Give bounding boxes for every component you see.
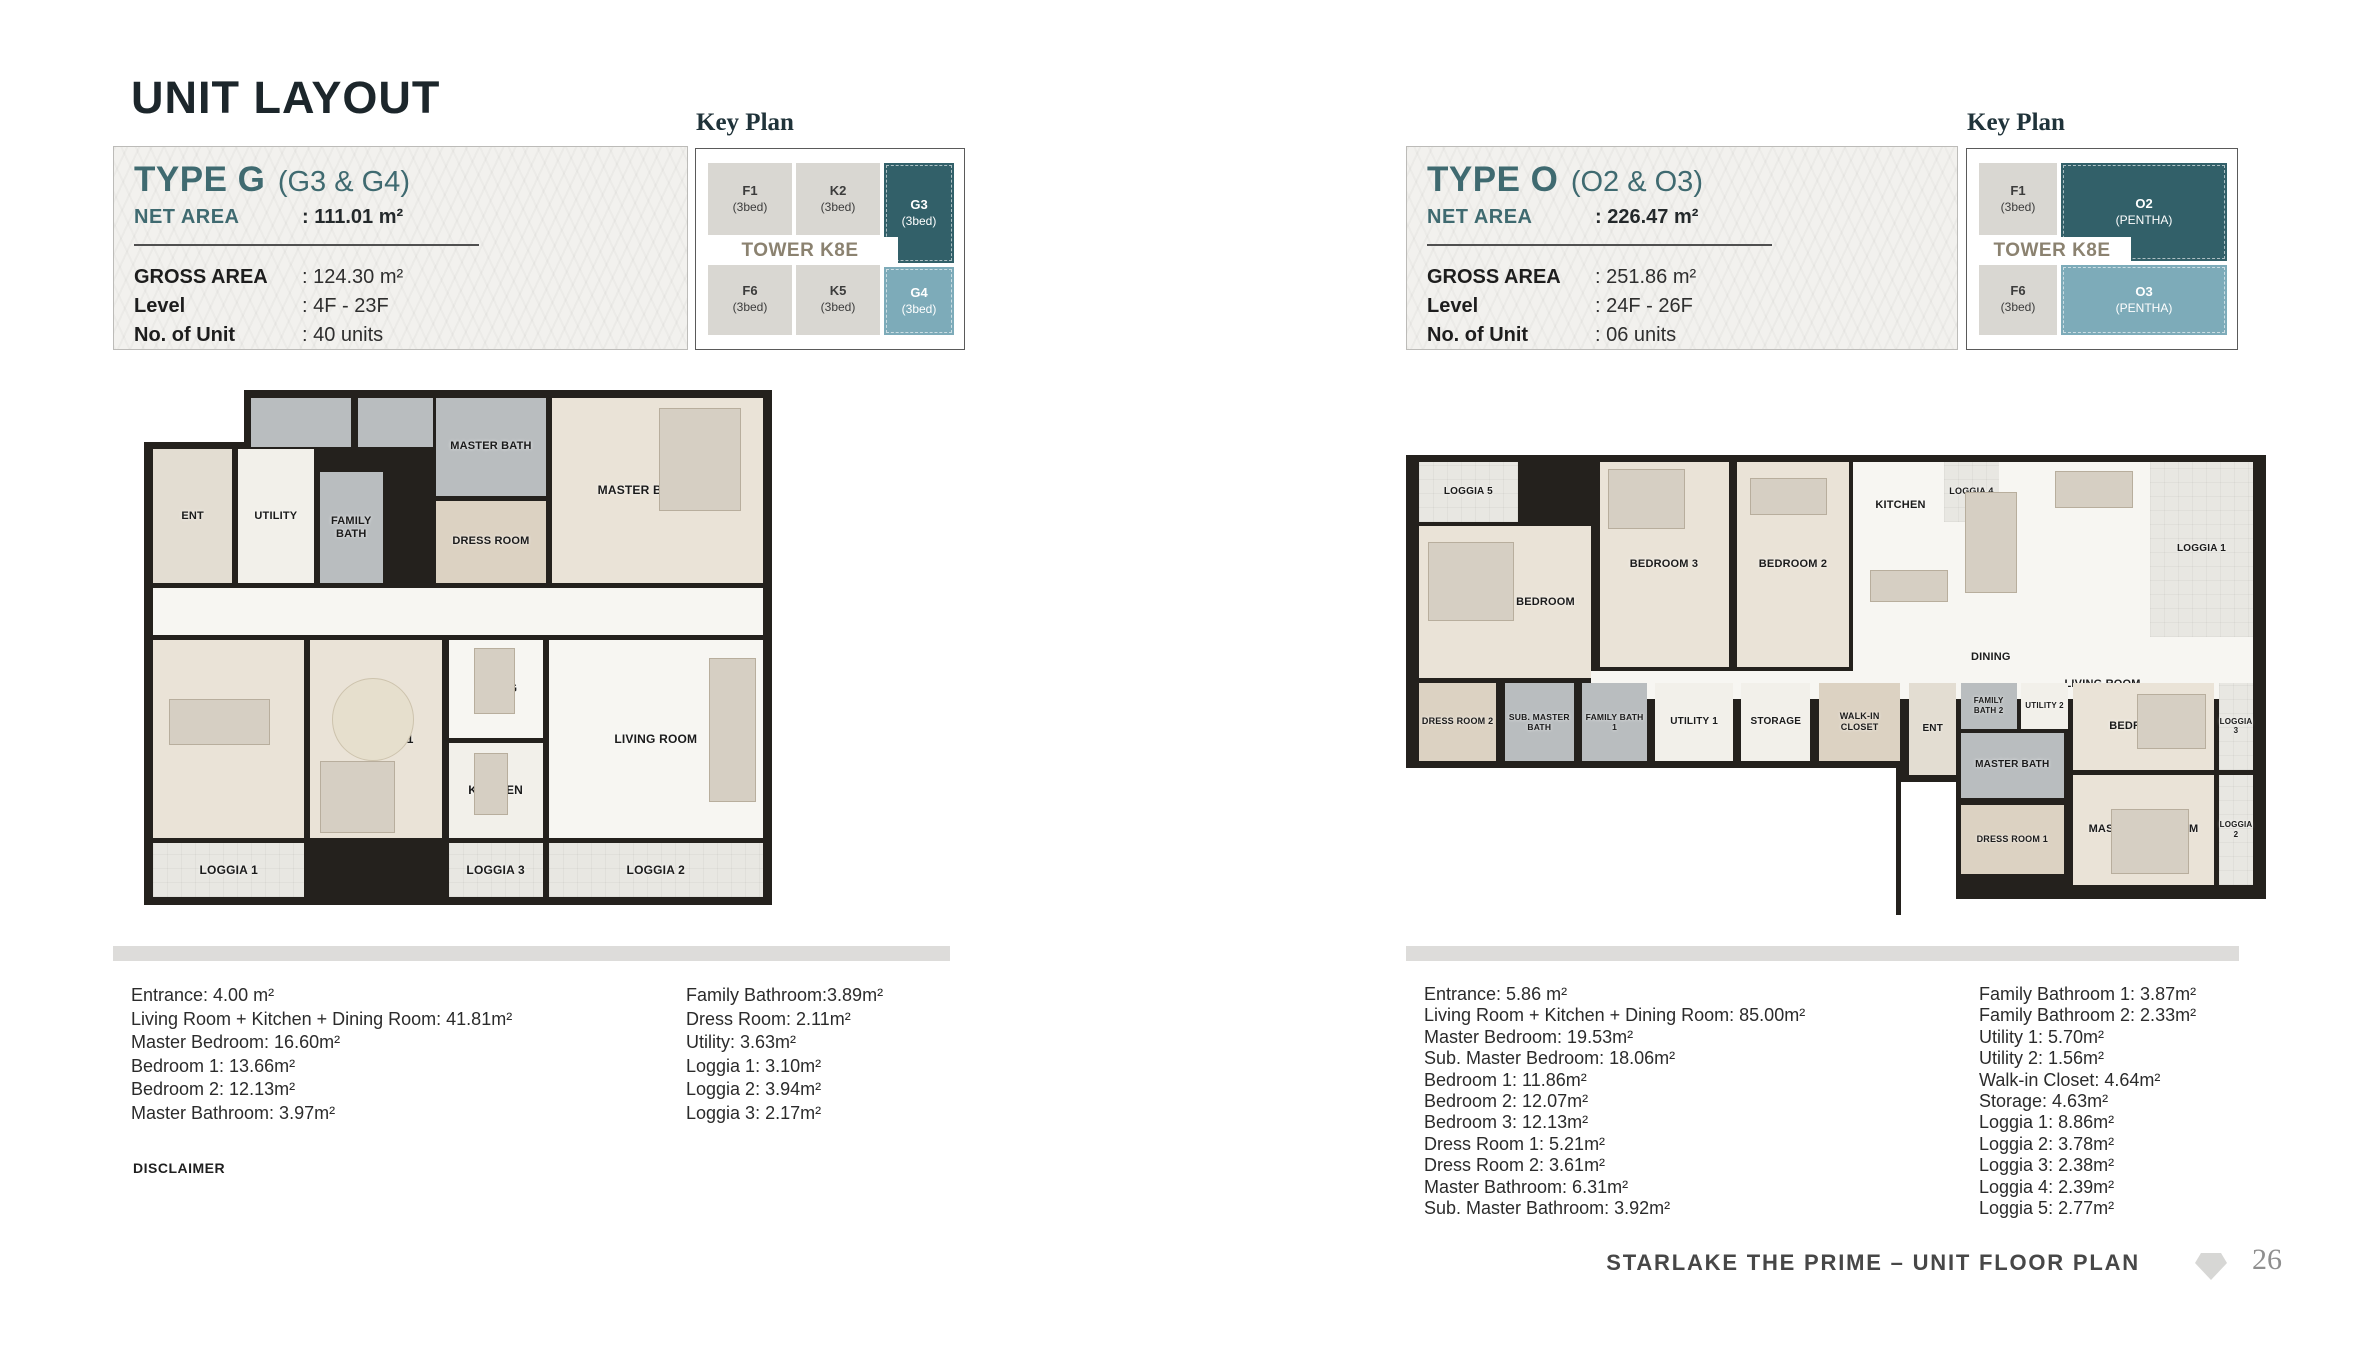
dimension-line: Dress Room: 2.11m² bbox=[686, 1008, 1246, 1032]
dimensions-col2: Family Bathroom 1: 3.87m²Family Bathroom… bbox=[1979, 984, 2371, 1219]
room-label: LOGGIA 1 bbox=[2175, 541, 2228, 557]
dimension-line: Utility 1: 5.70m² bbox=[1979, 1027, 2371, 1048]
room-loggia-5: LOGGIA 5 bbox=[1419, 462, 1518, 522]
dimension-line: Bedroom 2: 12.07m² bbox=[1424, 1091, 1984, 1112]
plan-area bbox=[332, 678, 414, 760]
room-dress-room-1: DRESS ROOM 1 bbox=[1961, 805, 2064, 874]
room-ent: ENT bbox=[153, 449, 232, 583]
room-loggia-2: LOGGIA 2 bbox=[2219, 775, 2253, 885]
tower-label: TOWER K8E bbox=[702, 237, 898, 265]
page-number: 26 bbox=[2252, 1243, 2282, 1277]
spec-label: No. of Unit bbox=[1427, 321, 1595, 350]
plan-area bbox=[1965, 492, 2017, 593]
plan-area bbox=[1901, 782, 1957, 915]
room-kitchen: KITCHEN bbox=[1858, 492, 1944, 520]
room-label: FAMILY BATH bbox=[320, 513, 383, 543]
net-area-value: : 111.01 m² bbox=[302, 206, 403, 228]
room-label: LIVING ROOM bbox=[612, 730, 699, 748]
room-label: FAMILY BATH 2 bbox=[1961, 694, 2017, 717]
divider-line bbox=[134, 244, 479, 246]
key-plan-cell-sub: (3bed) bbox=[2001, 200, 2036, 215]
spec-row-gross-area: GROSS AREA: 124.30 m² bbox=[134, 263, 687, 292]
dimension-line: Loggia 5: 2.77m² bbox=[1979, 1198, 2371, 1219]
dimensions-col1: Entrance: 4.00 m²Living Room + Kitchen +… bbox=[131, 984, 691, 1126]
plan-area bbox=[1922, 899, 2266, 915]
dimension-line: Master Bedroom: 16.60m² bbox=[131, 1031, 691, 1055]
key-plan-cell-g4: G4(3bed) bbox=[884, 267, 954, 335]
room-label: DRESS ROOM 2 bbox=[1420, 714, 1495, 729]
page-title: UNIT LAYOUT bbox=[131, 72, 440, 124]
room-label: DRESS ROOM 1 bbox=[1975, 832, 2050, 847]
spec-row-gross-area: GROSS AREA: 251.86 m² bbox=[1427, 263, 1957, 292]
type-line: TYPE O (O2 & O3) bbox=[1427, 160, 1957, 200]
shadow-bar bbox=[113, 946, 950, 961]
net-area-value: : 226.47 m² bbox=[1595, 206, 1698, 228]
room-family-bath-1: FAMILY BATH 1 bbox=[1582, 683, 1647, 761]
brochure-page: UNIT LAYOUT TYPE G (G3 & G4) NET AREA: 1… bbox=[0, 0, 2371, 1347]
plan-area bbox=[1428, 542, 1514, 620]
key-plan-cell-f6: F6(3bed) bbox=[708, 263, 792, 335]
unit-type-subtitle: (O2 & O3) bbox=[1571, 166, 1703, 198]
key-plan-box: Key Plan F1(3bed)K2(3bed)G3(3bed)F6(3bed… bbox=[695, 148, 965, 350]
key-plan-cell-label: F1 bbox=[742, 183, 757, 199]
room-label: LOGGIA 5 bbox=[1442, 484, 1495, 500]
room-loggia-3: LOGGIA 3 bbox=[449, 843, 543, 897]
dimension-line: Living Room + Kitchen + Dining Room: 85.… bbox=[1424, 1005, 1984, 1026]
key-plan-cell-sub: (3bed) bbox=[733, 300, 768, 315]
dimension-line: Entrance: 5.86 m² bbox=[1424, 984, 1984, 1005]
room-storage: STORAGE bbox=[1741, 683, 1810, 761]
dimension-line: Sub. Master Bedroom: 18.06m² bbox=[1424, 1048, 1984, 1069]
room-label: DINING bbox=[1969, 649, 2013, 666]
spec-label: Level bbox=[1427, 292, 1595, 321]
room-label: ENT bbox=[179, 508, 206, 525]
dimensions-col1: Entrance: 5.86 m²Living Room + Kitchen +… bbox=[1424, 984, 1984, 1219]
dimension-line: Storage: 4.63m² bbox=[1979, 1091, 2371, 1112]
spec-label: GROSS AREA bbox=[134, 263, 302, 292]
room-label: UTILITY 2 bbox=[2023, 699, 2066, 713]
room-label: STORAGE bbox=[1748, 714, 1803, 730]
spec-value: : 4F - 23F bbox=[302, 295, 389, 317]
dimension-line: Master Bedroom: 19.53m² bbox=[1424, 1027, 1984, 1048]
plan-area bbox=[659, 408, 741, 511]
net-area-row: NET AREA: 111.01 m² bbox=[134, 206, 687, 229]
spec-rows: GROSS AREA: 251.86 m²Level: 24F - 26FNo.… bbox=[1427, 263, 1957, 350]
dimension-line: Bedroom 1: 11.86m² bbox=[1424, 1070, 1984, 1091]
key-plan-box: Key Plan F1(3bed)O2(PENTHA)F6(3bed)O3(PE… bbox=[1966, 148, 2238, 350]
room-dress-room: DRESS ROOM bbox=[436, 501, 546, 583]
room-loggia-2: LOGGIA 2 bbox=[549, 843, 763, 897]
dimension-line: Master Bathroom: 3.97m² bbox=[131, 1102, 691, 1126]
room-master-bath: MASTER BATH bbox=[1961, 733, 2064, 797]
plan-area bbox=[2111, 809, 2188, 873]
dimension-line: Bedroom 3: 12.13m² bbox=[1424, 1112, 1984, 1133]
key-plan-cell-label: K5 bbox=[830, 283, 847, 299]
key-plan-cell-k5: K5(3bed) bbox=[796, 263, 880, 335]
dimension-line: Sub. Master Bathroom: 3.92m² bbox=[1424, 1198, 1984, 1219]
dimension-line: Loggia 1: 8.86m² bbox=[1979, 1112, 2371, 1133]
plan-area bbox=[169, 699, 269, 745]
shadow-bar bbox=[1406, 946, 2239, 961]
key-plan-cell-sub: (3bed) bbox=[733, 200, 768, 215]
dimension-line: Family Bathroom:3.89m² bbox=[686, 984, 1246, 1008]
room-label: SUB. MASTER BATH bbox=[1505, 710, 1574, 734]
room-utility-2: UTILITY 2 bbox=[2021, 683, 2068, 729]
spec-label: GROSS AREA bbox=[1427, 263, 1595, 292]
room-utility: UTILITY bbox=[238, 449, 313, 583]
key-plan-cell-sub: (3bed) bbox=[821, 300, 856, 315]
plan-area bbox=[153, 588, 762, 634]
disclaimer-block: DISCLAIMER bbox=[133, 1160, 833, 1183]
spec-row-level: Level: 24F - 26F bbox=[1427, 292, 1957, 321]
room-label: LOGGIA 2 bbox=[625, 861, 688, 879]
unit-type-title: TYPE O bbox=[1427, 160, 1558, 199]
room-dress-room-2: DRESS ROOM 2 bbox=[1419, 683, 1496, 761]
info-box: TYPE G (G3 & G4) NET AREA: 111.01 m² GRO… bbox=[113, 146, 688, 350]
dimension-line: Bedroom 1: 13.66m² bbox=[131, 1055, 691, 1079]
key-plan-cell-f1: F1(3bed) bbox=[708, 163, 792, 235]
room-label: WALK-IN CLOSET bbox=[1819, 709, 1901, 735]
room-label: LOGGIA 1 bbox=[198, 861, 261, 879]
dimension-line: Loggia 3: 2.38m² bbox=[1979, 1155, 2371, 1176]
key-plan-cell-sub: (PENTHA) bbox=[2116, 213, 2173, 228]
key-plan-cell-k2: K2(3bed) bbox=[796, 163, 880, 235]
plan-area bbox=[144, 390, 244, 442]
key-plan-cell-label: F6 bbox=[742, 283, 757, 299]
dimension-line: Dress Room 1: 5.21m² bbox=[1424, 1134, 1984, 1155]
net-area-label: NET AREA bbox=[134, 206, 302, 229]
key-plan-cell-label: G3 bbox=[910, 197, 927, 213]
tower-label: TOWER K8E bbox=[1973, 237, 2131, 265]
dimension-line: Loggia 2: 3.78m² bbox=[1979, 1134, 2371, 1155]
room-walk-in-closet: WALK-IN CLOSET bbox=[1819, 683, 1901, 761]
key-plan-cell-sub: (3bed) bbox=[902, 214, 937, 229]
room-label: UTILITY 1 bbox=[1668, 714, 1720, 730]
dimension-line: Dress Room 2: 3.61m² bbox=[1424, 1155, 1984, 1176]
room-loggia-1: LOGGIA 1 bbox=[153, 843, 304, 897]
divider-line bbox=[1427, 244, 1772, 246]
dimension-line: Utility 2: 1.56m² bbox=[1979, 1048, 2371, 1069]
floor-plan: LOGGIA 5SUB. MASTER BEDROOMBEDROOM 3BEDR… bbox=[1406, 455, 2266, 915]
dimension-line: Walk-in Closet: 4.64m² bbox=[1979, 1070, 2371, 1091]
key-plan-cell-label: G4 bbox=[910, 285, 927, 301]
spec-value: : 40 units bbox=[302, 324, 383, 346]
room-utility-1: UTILITY 1 bbox=[1655, 683, 1732, 761]
net-area-row: NET AREA: 226.47 m² bbox=[1427, 206, 1957, 229]
dimension-line: Bedroom 2: 12.13m² bbox=[131, 1078, 691, 1102]
footer-title: STARLAKE THE PRIME – UNIT FLOOR PLAN bbox=[1560, 1250, 2140, 1276]
key-plan-cell-sub: (3bed) bbox=[821, 200, 856, 215]
diamond-icon bbox=[2193, 1251, 2229, 1281]
dimensions-col2: Family Bathroom:3.89m²Dress Room: 2.11m²… bbox=[686, 984, 1246, 1126]
spec-value: : 124.30 m² bbox=[302, 266, 403, 288]
disclaimer-heading: DISCLAIMER bbox=[133, 1160, 833, 1176]
unit-type-subtitle: (G3 & G4) bbox=[278, 166, 410, 198]
key-plan-cell-f6: F6(3bed) bbox=[1979, 263, 2057, 335]
spec-label: No. of Unit bbox=[134, 321, 302, 350]
key-plan-cell-label: O3 bbox=[2135, 284, 2152, 300]
spec-label: Level bbox=[134, 292, 302, 321]
net-area-label: NET AREA bbox=[1427, 206, 1595, 229]
floor-plan: MASTER BATHMASTER BEDROOMENTUTILITYFAMIL… bbox=[144, 390, 772, 905]
key-plan-cell-sub: (3bed) bbox=[2001, 300, 2036, 315]
info-box: TYPE O (O2 & O3) NET AREA: 226.47 m² GRO… bbox=[1406, 146, 1958, 350]
room-label: MASTER BATH bbox=[448, 438, 533, 455]
plan-area bbox=[474, 648, 515, 715]
dimension-line: Loggia 4: 2.39m² bbox=[1979, 1177, 2371, 1198]
room-label: LOGGIA 3 bbox=[2218, 715, 2254, 738]
plan-area bbox=[2137, 694, 2206, 749]
key-plan-cell-label: K2 bbox=[830, 183, 847, 199]
room-family-bath: FAMILY BATH bbox=[320, 472, 383, 583]
key-plan-cell-f1: F1(3bed) bbox=[1979, 163, 2057, 235]
spec-value: : 251.86 m² bbox=[1595, 266, 1696, 288]
room-label: BEDROOM 2 bbox=[1757, 556, 1829, 573]
unit-card-type-o: TYPE O (O2 & O3) NET AREA: 226.47 m² GRO… bbox=[1406, 146, 2271, 1346]
room-label: MASTER BATH bbox=[1973, 757, 2051, 773]
dimension-line: Living Room + Kitchen + Dining Room: 41.… bbox=[131, 1008, 691, 1032]
room-family-bath-2: FAMILY BATH 2 bbox=[1961, 683, 2017, 729]
key-plan-heading: Key Plan bbox=[696, 109, 794, 137]
plan-area bbox=[1870, 570, 1947, 602]
spec-value: : 06 units bbox=[1595, 324, 1676, 346]
key-plan-cell-label: F6 bbox=[2010, 283, 2025, 299]
unit-type-title: TYPE G bbox=[134, 160, 265, 199]
plan-area bbox=[320, 761, 395, 833]
plan-area bbox=[358, 398, 433, 447]
plan-area bbox=[709, 658, 756, 802]
dimension-line: Loggia 2: 3.94m² bbox=[686, 1078, 1246, 1102]
room-label: KITCHEN bbox=[1873, 497, 1927, 514]
dimension-line: Family Bathroom 2: 2.33m² bbox=[1979, 1005, 2371, 1026]
room-label: ENT bbox=[1920, 721, 1945, 737]
room-dining: DINING bbox=[1948, 644, 2034, 672]
spec-value: : 24F - 26F bbox=[1595, 295, 1693, 317]
dimension-line: Entrance: 4.00 m² bbox=[131, 984, 691, 1008]
room-label: DRESS ROOM bbox=[450, 533, 531, 550]
key-plan-cell-label: F1 bbox=[2010, 183, 2025, 199]
key-plan-cell-label: O2 bbox=[2135, 196, 2152, 212]
plan-area bbox=[1406, 768, 1896, 915]
room-loggia-1: LOGGIA 1 bbox=[2150, 462, 2253, 637]
type-line: TYPE G (G3 & G4) bbox=[134, 160, 687, 200]
key-plan-cell-o3: O3(PENTHA) bbox=[2061, 265, 2227, 335]
spec-row-no-of-unit: No. of Unit: 06 units bbox=[1427, 321, 1957, 350]
key-plan-cell-sub: (PENTHA) bbox=[2116, 301, 2173, 316]
key-plan-cell-sub: (3bed) bbox=[902, 302, 937, 317]
room-loggia-3: LOGGIA 3 bbox=[2219, 683, 2253, 770]
room-label: LOGGIA 2 bbox=[2218, 818, 2254, 841]
dimension-line: Loggia 3: 2.17m² bbox=[686, 1102, 1246, 1126]
spec-row-no-of-unit: No. of Unit: 40 units bbox=[134, 321, 687, 350]
room-ent: ENT bbox=[1909, 683, 1956, 775]
room-label: FAMILY BATH 1 bbox=[1582, 710, 1647, 734]
plan-area bbox=[251, 398, 351, 447]
dimension-line: Family Bathroom 1: 3.87m² bbox=[1979, 984, 2371, 1005]
dimension-line: Master Bathroom: 6.31m² bbox=[1424, 1177, 1984, 1198]
plan-area bbox=[1608, 469, 1685, 529]
room-sub-master-bath: SUB. MASTER BATH bbox=[1505, 683, 1574, 761]
plan-area bbox=[2055, 471, 2132, 508]
room-label: UTILITY bbox=[252, 508, 299, 525]
plan-area bbox=[474, 753, 509, 815]
spec-rows: GROSS AREA: 124.30 m²Level: 4F - 23FNo. … bbox=[134, 263, 687, 350]
dimension-line: Loggia 1: 3.10m² bbox=[686, 1055, 1246, 1079]
room-label: BEDROOM 3 bbox=[1628, 556, 1700, 573]
room-master-bath: MASTER BATH bbox=[436, 398, 546, 496]
spec-row-level: Level: 4F - 23F bbox=[134, 292, 687, 321]
dimension-line: Utility: 3.63m² bbox=[686, 1031, 1246, 1055]
room-label: LOGGIA 3 bbox=[464, 861, 527, 879]
key-plan-heading: Key Plan bbox=[1967, 109, 2065, 137]
plan-area bbox=[1750, 478, 1827, 515]
